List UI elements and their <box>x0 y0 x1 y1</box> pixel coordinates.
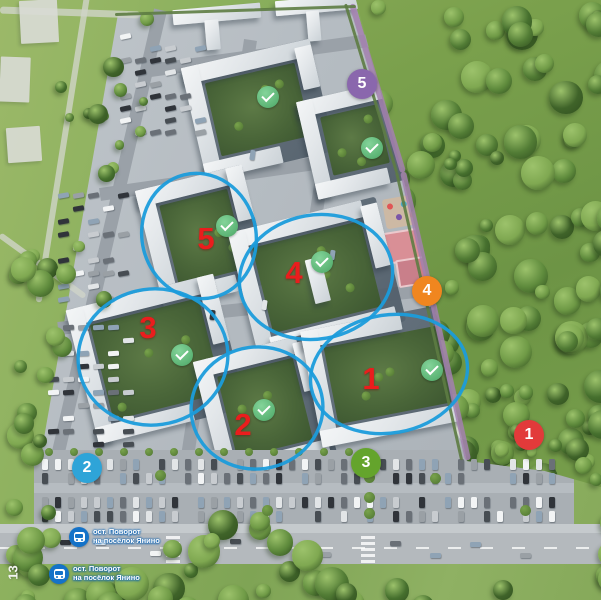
check-icon <box>175 347 188 360</box>
bus-stop-marker: ост. Поворот на посёлок Янино <box>69 527 160 547</box>
check-icon <box>261 89 274 102</box>
map-overlays: 5432154132 <box>0 0 601 600</box>
completed-check-marker[interactable] <box>257 86 279 108</box>
bus-icon <box>49 564 69 584</box>
check-icon <box>315 254 328 267</box>
poi-marker-3[interactable]: 3 <box>351 448 381 478</box>
bus-stop-marker: ост. Поворот на посёлок Янино <box>49 564 140 584</box>
check-icon <box>220 218 233 231</box>
building-highlight-ellipse-1[interactable] <box>301 302 477 446</box>
road-number-label: 13 <box>6 565 21 579</box>
completed-check-marker[interactable] <box>361 137 383 159</box>
building-highlight-ellipse-4[interactable] <box>229 203 402 352</box>
check-icon <box>425 362 438 375</box>
bus-stop-label: ост. Поворот на посёлок Янино <box>93 528 160 545</box>
check-icon <box>257 402 270 415</box>
check-icon <box>365 140 378 153</box>
bus-stop-label-line2: на посёлок Янино <box>73 574 140 583</box>
completed-check-marker[interactable] <box>171 344 193 366</box>
building-highlight-ellipse-3[interactable] <box>69 279 236 435</box>
poi-marker-1[interactable]: 1 <box>514 420 544 450</box>
building-number-2[interactable]: 2 <box>228 409 258 440</box>
building-number-4[interactable]: 4 <box>279 257 309 288</box>
poi-marker-5[interactable]: 5 <box>347 69 377 99</box>
building-number-5[interactable]: 5 <box>191 223 221 254</box>
highlight-ellipses <box>0 0 601 600</box>
poi-marker-2[interactable]: 2 <box>72 453 102 483</box>
building-number-3[interactable]: 3 <box>133 312 163 343</box>
completed-check-marker[interactable] <box>311 251 333 273</box>
bus-icon <box>69 527 89 547</box>
building-number-1[interactable]: 1 <box>356 363 386 394</box>
bus-stop-label-line2: на посёлок Янино <box>93 537 160 546</box>
poi-marker-4[interactable]: 4 <box>412 276 442 306</box>
completed-check-marker[interactable] <box>421 359 443 381</box>
masterplan-aerial-map: 5432154132 ост. Поворот на посёлок Янино… <box>0 0 601 600</box>
bus-stop-label: ост. Поворот на посёлок Янино <box>73 565 140 582</box>
